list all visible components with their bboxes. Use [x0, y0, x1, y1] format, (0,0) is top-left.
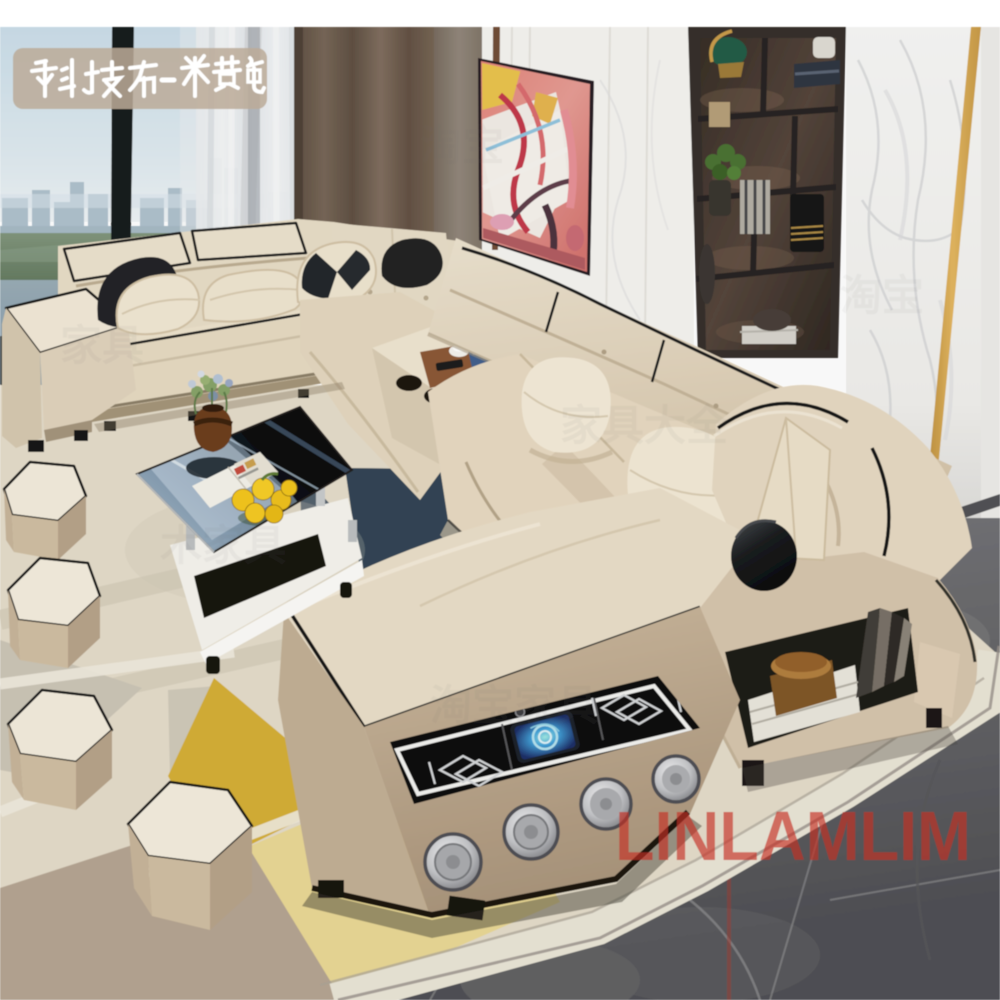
svg-text:木家具: 木家具: [160, 522, 286, 569]
svg-text:LINLAMLIM: LINLAMLIM: [615, 797, 971, 875]
svg-text:淘宝: 淘宝: [420, 122, 504, 169]
svg-text:淘宝家具: 淘宝家具: [430, 682, 598, 729]
svg-text:家具: 家具: [60, 322, 144, 369]
svg-text:家具大全: 家具大全: [560, 402, 729, 449]
svg-text:淘宝: 淘宝: [840, 272, 924, 319]
